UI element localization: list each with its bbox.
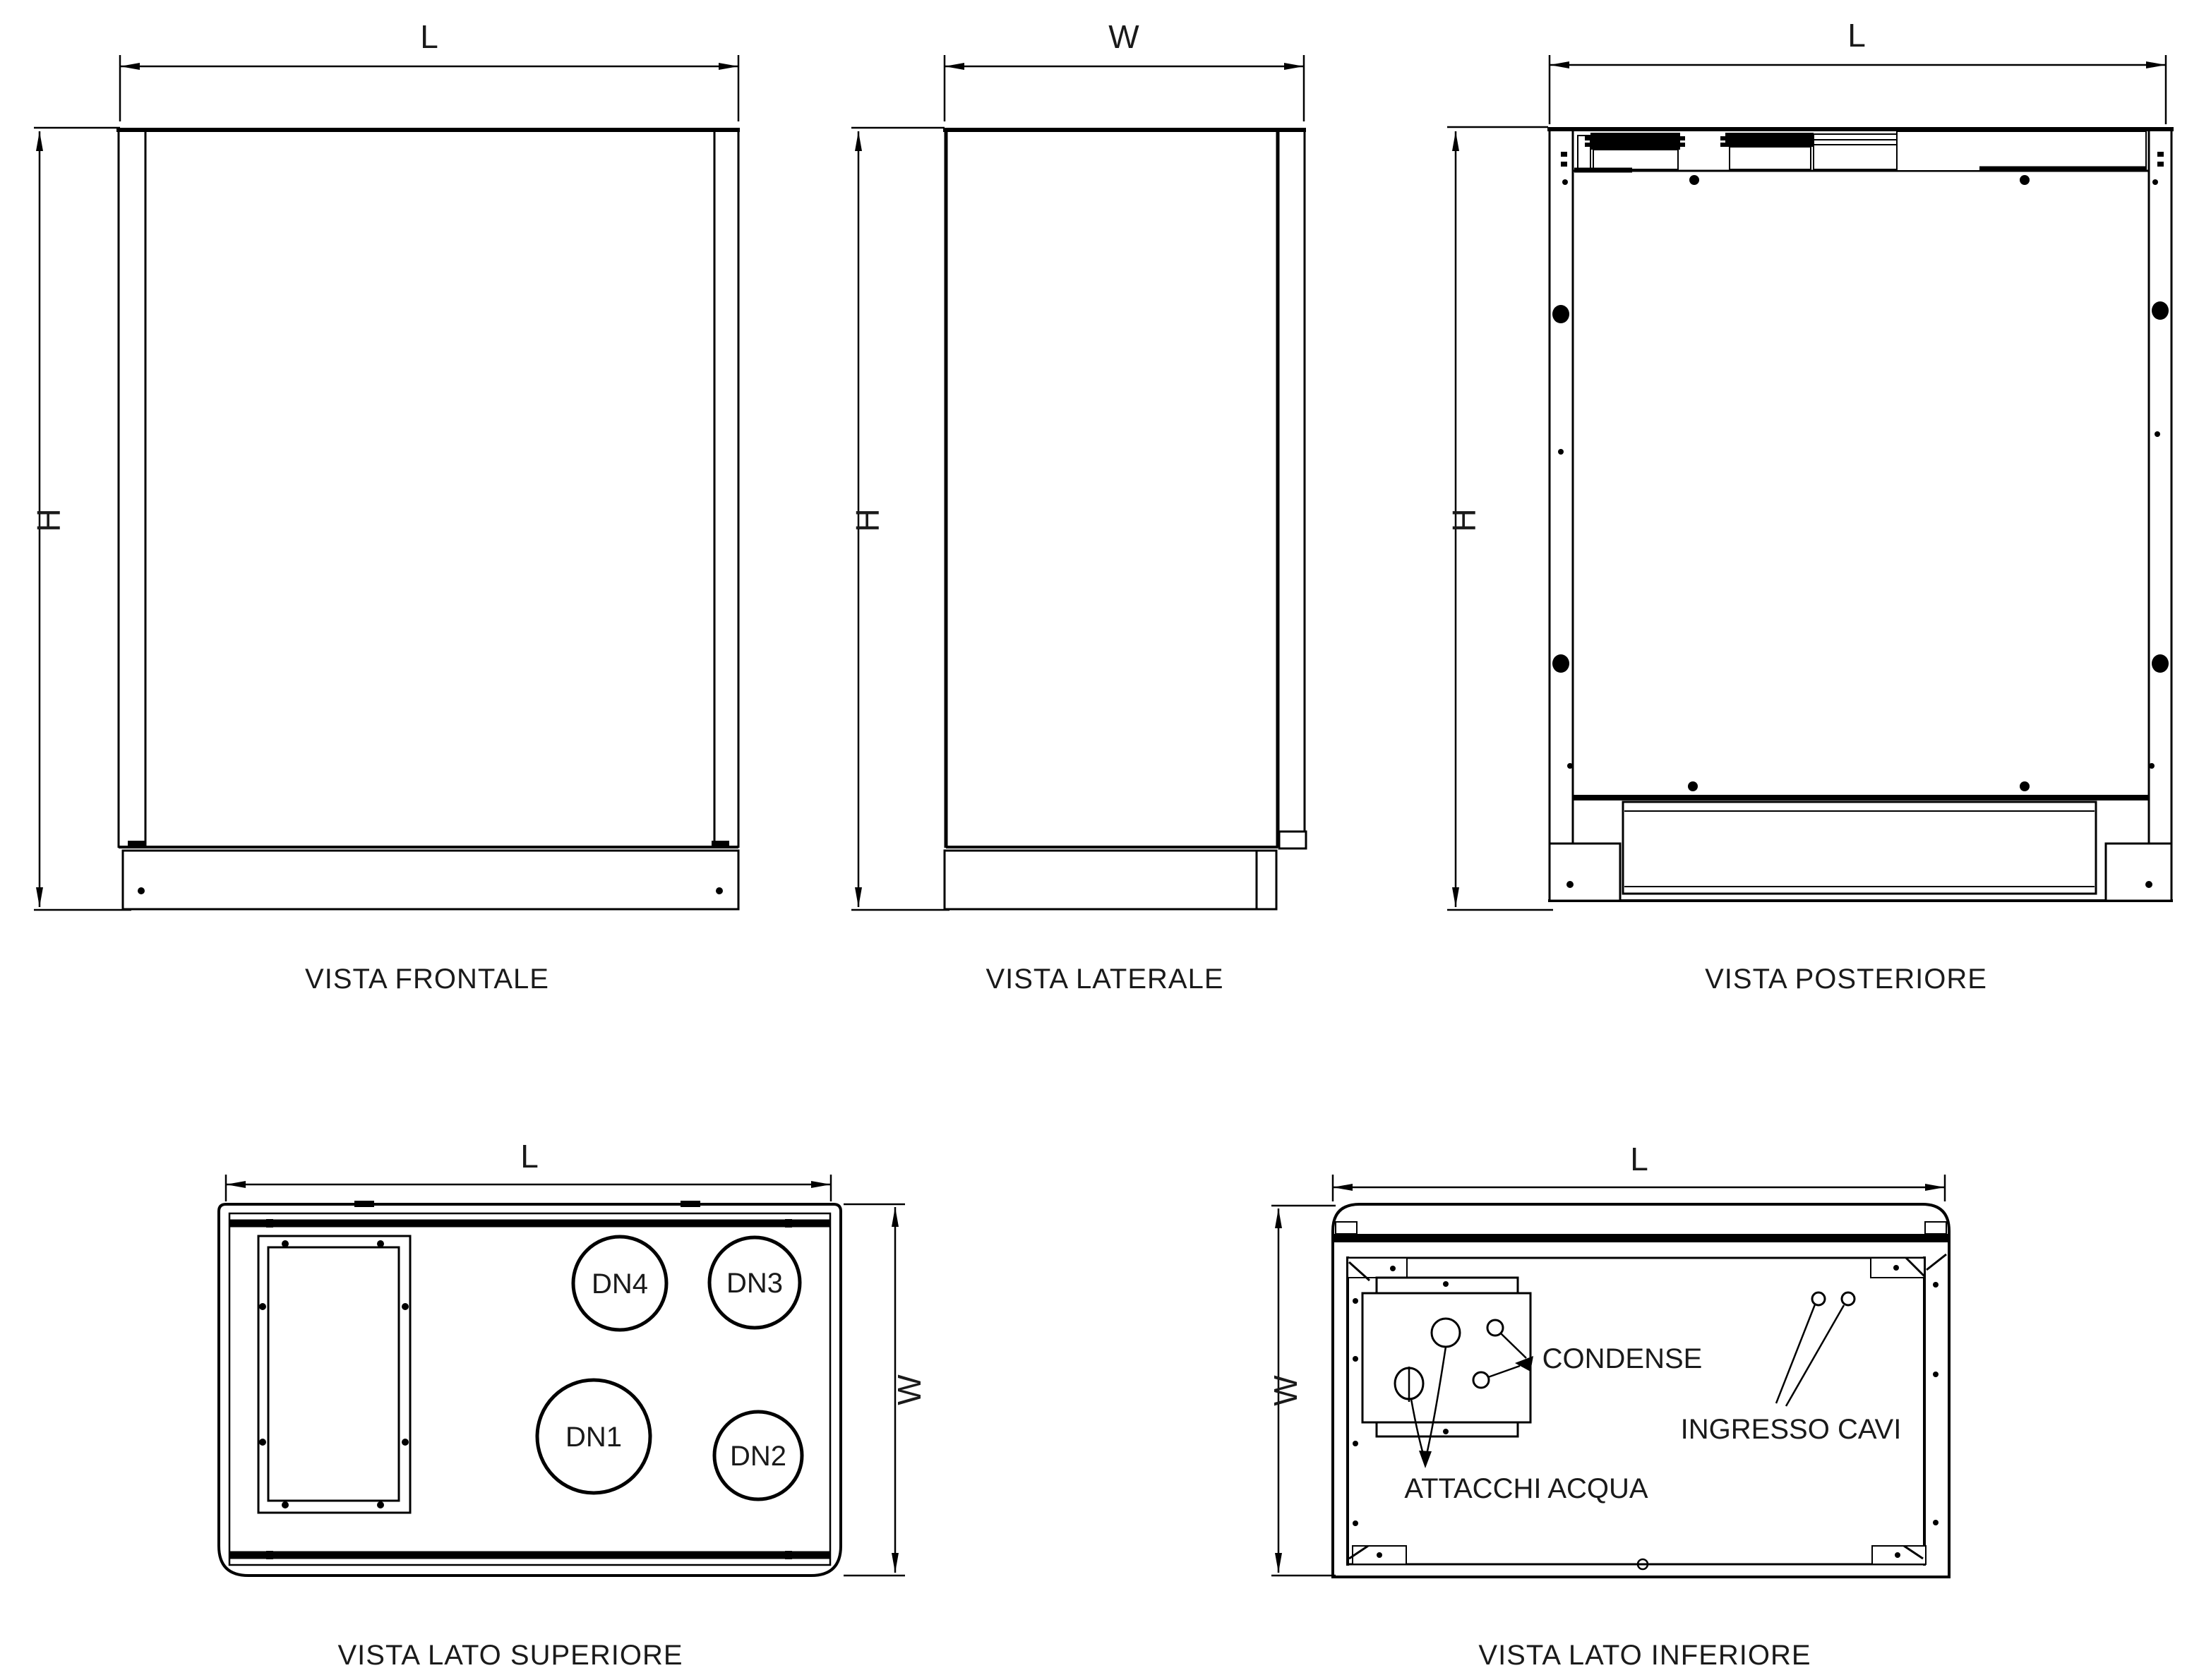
front-dim-length-label: L — [420, 18, 438, 55]
rear-hinge-screw — [2152, 654, 2169, 673]
rear-hinge-screw — [1552, 305, 1569, 323]
top-view-caption: VISTA LATO SUPERIORE — [337, 1640, 683, 1671]
dimensional-drawing: L H VISTA FRONTALE W — [0, 0, 2211, 1680]
rear-left-foot — [1550, 844, 1620, 901]
cable-entry-label: INGRESSO CAVI — [1681, 1414, 1902, 1445]
side-dimensions: W H — [849, 18, 1304, 910]
cable-entry-hole — [1842, 1292, 1855, 1305]
side-view: W H VISTA LATERALE — [849, 18, 1306, 995]
front-right-foot-mark — [712, 841, 729, 847]
rear-dim-height-label: H — [1446, 508, 1482, 532]
rear-hinge-screw — [2152, 301, 2169, 320]
rear-dim-length-label: L — [1847, 17, 1866, 54]
top-view: L W DN4 — [219, 1138, 928, 1671]
rear-vent-block-2 — [1725, 133, 1814, 147]
rear-view-caption: VISTA POSTERIORE — [1705, 964, 1987, 995]
front-base-screw-left — [138, 887, 145, 894]
rear-view: L H — [1446, 17, 2174, 995]
rear-right-foot — [2106, 844, 2171, 901]
front-base-plinth — [123, 851, 738, 909]
front-view: L H VISTA FRONTALE — [30, 18, 740, 995]
technical-drawing-page: L H VISTA FRONTALE W — [0, 0, 2211, 1680]
front-dim-height-label: H — [30, 508, 67, 532]
condensate-label: CONDENSE — [1542, 1343, 1703, 1374]
bottom-gasket-band — [1334, 1234, 1948, 1242]
bottom-view: L W — [1267, 1141, 1949, 1671]
rear-vent-block-1 — [1590, 133, 1680, 150]
top-dim-width-label: W — [891, 1374, 928, 1405]
bottom-water-panel — [1362, 1278, 1530, 1436]
front-base-screw-right — [716, 887, 723, 894]
port-dn3-label: DN3 — [726, 1268, 783, 1299]
top-dim-length-label: L — [520, 1138, 539, 1175]
front-view-caption: VISTA FRONTALE — [305, 964, 549, 995]
port-dn1-label: DN1 — [565, 1422, 622, 1453]
water-connections-label: ATTACCHI ACQUA — [1404, 1473, 1648, 1504]
top-access-panel — [258, 1236, 410, 1513]
side-cabinet-outline — [943, 128, 1306, 848]
cable-entry-hole — [1812, 1292, 1825, 1305]
side-dim-width-label: W — [1108, 18, 1139, 55]
side-rear-foot — [1279, 832, 1306, 848]
rear-base-recess — [1550, 781, 2171, 901]
side-view-caption: VISTA LATERALE — [985, 964, 1223, 995]
front-cabinet-outline — [116, 128, 740, 848]
rear-hinge-screw — [1552, 654, 1569, 673]
bottom-view-caption: VISTA LATO INFERIORE — [1478, 1640, 1811, 1671]
side-base-plinth — [945, 851, 1276, 909]
bottom-dim-length-label: L — [1630, 1141, 1648, 1177]
rear-panel-screws — [1552, 152, 2169, 769]
rear-cabinet-outline — [1547, 127, 2174, 901]
front-left-foot-mark — [128, 841, 145, 847]
leader-arrow — [1419, 1451, 1432, 1468]
side-dim-height-label: H — [849, 508, 886, 532]
port-dn4-label: DN4 — [592, 1268, 648, 1300]
rear-top-vent-band — [1573, 131, 2149, 171]
port-dn2-label: DN2 — [730, 1441, 786, 1472]
front-dimensions: L H — [30, 18, 738, 910]
bottom-dim-width-label: W — [1267, 1375, 1304, 1406]
